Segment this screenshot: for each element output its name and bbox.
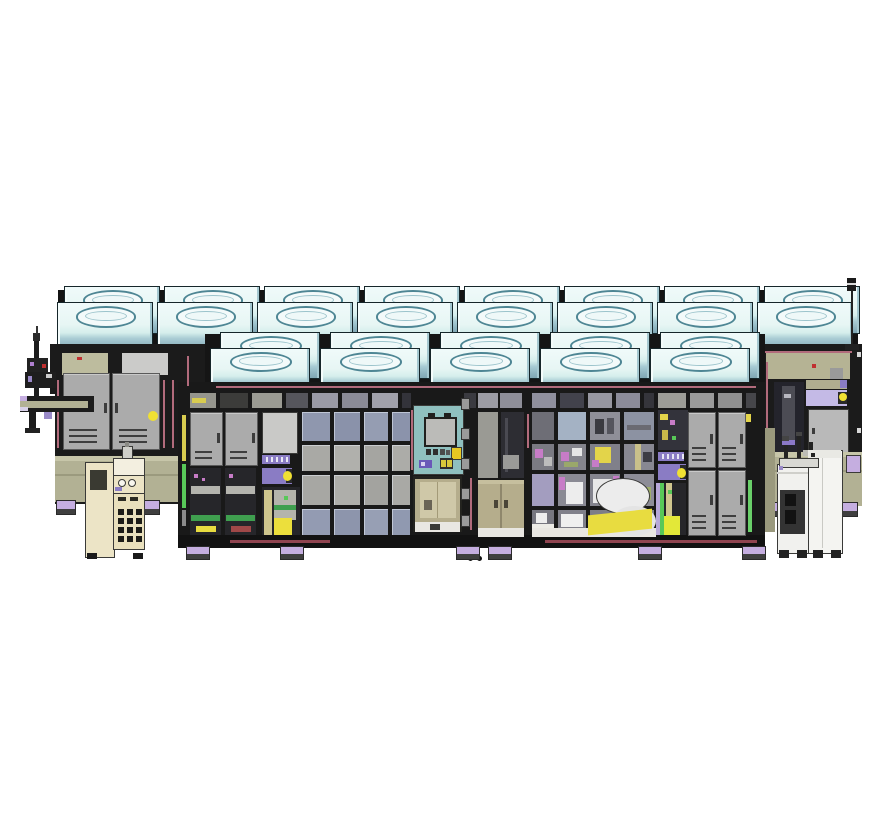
efem1-c-khaki: [264, 490, 272, 535]
accent-line-3: [230, 540, 330, 543]
efem1-tall-panel: [262, 412, 298, 454]
tower-foot: [25, 428, 40, 433]
pendant-btn-3: [440, 449, 445, 455]
tower-shelf-khaki: [20, 401, 88, 408]
bay-window-r1c4: [624, 412, 654, 440]
doors-yellow-chip: [746, 414, 751, 422]
service-door-top-left-vent: [692, 459, 706, 461]
tower-marks: [20, 407, 28, 411]
transom-window-18: [690, 393, 714, 408]
mid-cabinet-split: [500, 484, 502, 528]
tower-lamp-purple: [30, 362, 34, 366]
keypad-tick-2-3: [672, 454, 674, 459]
cart-key-r3c2: [127, 527, 133, 533]
service-door-bottom-right-vent: [722, 527, 736, 529]
service-door-bottom-right-vent: [722, 521, 736, 523]
efem1-a-yellow: [196, 526, 216, 532]
left-module-window-red-dot: [77, 357, 82, 360]
door-hinge-4: [461, 488, 470, 500]
transom-window-4: [286, 393, 308, 408]
cart-key-r4c3: [136, 536, 142, 542]
service-door-top-right-vent: [722, 447, 736, 449]
efem1-window-a: [190, 468, 221, 535]
right-module-mark-1: [857, 352, 861, 357]
keypad-tick-1-3: [276, 457, 278, 462]
bay-window-r1c2: [558, 412, 586, 440]
bay-equipment-chip: [561, 514, 583, 527]
left-module-door-b-vent: [119, 441, 148, 443]
front-edge-yellow-strip: [182, 415, 186, 461]
door-hinge-3: [461, 458, 470, 470]
tower-lamp-red: [42, 364, 46, 368]
transom-window-11: [500, 393, 522, 408]
left-module-door-a-vent: [69, 441, 97, 443]
glass-tile-r2c2: [334, 445, 360, 471]
left-cart-slot-1: [118, 497, 126, 501]
mid-window-box: [503, 455, 519, 469]
service-door-bottom-left-vent: [692, 515, 706, 517]
transom-yellow-chip: [192, 398, 206, 403]
efem2-yellow: [664, 516, 680, 535]
efem1-yellow-lamp: [283, 471, 292, 481]
antenna-rod: [851, 290, 853, 348]
cart-key-r4c2: [127, 536, 133, 542]
right-cart-manifold: [779, 458, 819, 468]
left-module-door-a-vent: [69, 429, 97, 431]
left-module-window-khaki: [62, 353, 108, 375]
door-hinge-1: [461, 398, 470, 410]
glass-tile-r1c2: [334, 412, 360, 441]
hinge-pink-line: [470, 478, 472, 530]
left-cart-btn-2: [128, 479, 136, 487]
mid-floor: [478, 528, 524, 537]
efem1-door-a: [190, 412, 223, 466]
service-door-bottom-left-vent: [692, 521, 706, 523]
efem1-door-a-vent: [195, 457, 212, 459]
keypad-tick-2-4: [677, 454, 679, 459]
efem2-chip-y2: [662, 430, 668, 440]
left-cart-screen: [90, 470, 107, 490]
pendant-btn-1: [426, 449, 431, 455]
glass-tile-r2c3: [364, 445, 388, 471]
bay-equipment-chip: [627, 425, 651, 431]
efem2-yellow-lamp: [677, 468, 686, 478]
efem1-a-dot1: [194, 474, 198, 478]
mid-cabinet-handle-1: [494, 500, 498, 508]
bay-equipment-chip: [535, 449, 543, 458]
efem1-a-bar: [191, 486, 220, 494]
glass-tile-r3c1: [302, 475, 330, 505]
pendant-btn-4: [446, 450, 450, 455]
bay-window-r2c4: [624, 444, 654, 470]
right-cart-seam: [822, 458, 823, 548]
center-window-floor-bit: [430, 524, 440, 530]
glass-tile-r3c4: [392, 475, 410, 505]
efem1-door-b-vent: [230, 451, 247, 453]
glass-tile-r1c1: [302, 412, 330, 441]
service-door-top-left-handle: [710, 434, 713, 444]
right-cart-caster-4: [831, 550, 841, 558]
right-cart-caster-3: [813, 550, 823, 558]
cart-key-r2c1: [118, 518, 124, 524]
leveling-caster-7: [56, 500, 76, 515]
right-cart-square-2: [785, 510, 796, 524]
efem2-greendot: [668, 490, 672, 494]
efem1-b-dot: [229, 474, 233, 478]
service-door-top-right-vent: [722, 453, 736, 455]
bay-equipment-chip: [595, 419, 604, 434]
transom-window-10: [478, 393, 498, 408]
left-cart-foot-2: [133, 553, 143, 559]
keypad-tick-2-1: [662, 454, 664, 459]
left-module-pink-line-2: [163, 380, 165, 448]
efem1-c-green: [274, 505, 296, 510]
transom-window-19: [718, 393, 742, 408]
pendant-badge-dot: [421, 462, 425, 466]
glass-tile-r3c3: [364, 475, 388, 505]
glass-tile-r2c4: [392, 445, 410, 471]
left-cart-bottle-cap: [125, 442, 129, 447]
efem2-chip-g: [672, 436, 676, 440]
equipment-line-render: [0, 0, 879, 834]
transom-window-16: [644, 393, 654, 408]
bay-equipment-chip: [559, 477, 565, 490]
tower-chip-purple: [28, 376, 32, 382]
efem1-a-dot2: [202, 478, 205, 481]
right-cart-unit-line: [777, 472, 808, 474]
glass-tile-r4c2: [334, 509, 360, 535]
ffu-fan-ring-inner: [349, 356, 392, 365]
bay-window-r1c1: [532, 412, 554, 440]
transom-window-13: [560, 393, 584, 408]
service-door-top-left-vent: [692, 453, 706, 455]
transom-window-3: [252, 393, 282, 408]
door-hinge-5: [461, 515, 470, 527]
left-cart-chip: [115, 487, 122, 491]
tower-chip-white: [46, 374, 52, 378]
cart-key-r4c1: [118, 536, 124, 542]
bay-window-r2c3: [590, 444, 620, 470]
bay-equipment-chip: [561, 452, 569, 461]
right-module-gray-box: [830, 368, 843, 379]
bay-window-r1c3: [590, 412, 620, 440]
service-door-bottom-right-handle: [740, 495, 743, 505]
bay-equipment-chip: [566, 482, 583, 504]
bay-equipment-chip: [643, 452, 652, 462]
keypad-tick-1-5: [286, 457, 288, 462]
transom-window-2: [220, 393, 248, 408]
left-cart-slot-2: [130, 497, 138, 501]
right-cart-knob-2: [796, 432, 802, 436]
efem1-door-a-handle: [217, 433, 220, 443]
glass-tile-r3c2: [334, 475, 360, 505]
center-window-seam: [437, 482, 438, 518]
bay-equipment-chip: [592, 460, 600, 468]
cart-key-r1c2: [127, 509, 133, 515]
keypad-tick-1-2: [271, 457, 273, 462]
transom-window-5: [312, 393, 338, 408]
pendant-btn-2: [433, 449, 438, 455]
cart-key-r3c3: [136, 527, 142, 533]
ffu-fan-ring-inner: [239, 356, 282, 365]
left-cart-btn-1: [118, 479, 126, 487]
efem1-a-green: [191, 515, 220, 521]
service-door-top-right: [718, 412, 746, 468]
left-module-pink-line-1: [57, 380, 59, 448]
right-cart-knob-1: [782, 436, 789, 441]
cart-key-r1c3: [136, 509, 142, 515]
pendant-ear-2: [444, 413, 451, 418]
glass-tile-r4c4: [392, 509, 410, 535]
service-door-top-left-vent: [692, 447, 706, 449]
transom-window-14: [588, 393, 612, 408]
bay-equipment-chip: [607, 418, 615, 435]
efem2-chip-y1: [660, 414, 668, 420]
service-door-top-right-handle: [740, 434, 743, 444]
efem1-door-b-handle: [252, 433, 255, 443]
front-edge-green-strip: [182, 464, 186, 508]
efem1-window-b: [225, 468, 256, 535]
right-cart-purple-dot: [779, 466, 783, 470]
door-hinge-2: [461, 428, 470, 440]
leveling-caster-2: [280, 546, 304, 560]
cart-key-r2c2: [127, 518, 133, 524]
transom-window-17: [658, 393, 686, 408]
efem1-b-green: [226, 515, 255, 521]
left-cart-foot-1: [87, 553, 97, 559]
mid-pink-line: [527, 414, 529, 448]
keypad-tick-1-1: [266, 457, 268, 462]
front-edge-gray-strip: [182, 510, 186, 526]
antenna-stripe: [847, 283, 856, 285]
ffu-fan-ring-inner: [569, 356, 612, 365]
left-module-door-a-vent: [69, 435, 97, 437]
accent-line-4: [545, 540, 757, 543]
cart-key-r1c1: [118, 509, 124, 515]
left-module-door-b-vent: [119, 435, 148, 437]
pendant-key-2: [447, 460, 452, 467]
left-module-window-light: [122, 353, 168, 375]
center-window-dark: [424, 500, 432, 510]
bay-equipment-chip: [572, 448, 582, 456]
right-module-mark-2: [857, 428, 861, 433]
glass-tile-r1c4: [392, 412, 410, 441]
tower-shelf-caster: [20, 396, 27, 401]
right-cart-caster-2: [797, 550, 807, 558]
leveling-caster-5: [638, 546, 662, 560]
efem1-door-b: [225, 412, 258, 466]
leveling-caster-3: [456, 546, 480, 560]
transom-window-6: [342, 393, 368, 408]
service-door-bottom-left: [688, 470, 716, 536]
service-door-bottom-right-vent: [722, 515, 736, 517]
ffu-fan-ring-inner: [679, 356, 722, 365]
pendant-key-1: [441, 460, 446, 467]
service-door-top-right-vent: [722, 459, 736, 461]
bay-equipment-chip: [564, 462, 578, 467]
service-door-bottom-left-vent: [692, 527, 706, 529]
leveling-caster-6: [742, 546, 766, 560]
keypad-tick-2-2: [667, 454, 669, 459]
efem1-c-yellow: [274, 518, 292, 535]
bay-equipment-chip: [536, 513, 547, 523]
right-cart-pipe-2: [797, 436, 801, 460]
left-module-door-a-handle: [104, 403, 107, 413]
glass-tile-r1c3: [364, 412, 388, 441]
service-door-bottom-right: [718, 470, 746, 536]
service-door-top-left: [688, 412, 716, 468]
mid-window-mullion: [498, 412, 501, 478]
right-module-rack-chip: [784, 394, 791, 398]
left-module-door-b-vent: [119, 429, 148, 431]
cart-key-r3c1: [118, 527, 124, 533]
right-module-purple-chip: [840, 380, 847, 388]
doors-green-strip: [748, 480, 752, 532]
bay-equipment-chip: [635, 444, 641, 470]
bay-window-r2c1: [532, 444, 554, 470]
pendant-ear-1: [428, 413, 435, 418]
right-module-red-dot: [812, 364, 816, 368]
efem1-b-bar: [226, 486, 255, 494]
efem1-b-red: [231, 526, 251, 532]
transom-window-7: [372, 393, 398, 408]
transom-window-20: [746, 393, 756, 408]
left-module-pink-line-3: [172, 380, 174, 448]
keypad-tick-2-5: [682, 454, 684, 459]
efem1-door-a-vent: [195, 451, 212, 453]
transom-window-12: [532, 393, 556, 408]
cart-key-r2c3: [136, 518, 142, 524]
tower-purple-box: [44, 412, 52, 419]
glass-tile-r4c3: [364, 509, 388, 535]
accent-line-2: [216, 386, 756, 388]
bay-window-r3c2: [558, 474, 586, 506]
service-door-bottom-left-handle: [710, 495, 713, 505]
right-cart-dot: [811, 453, 815, 457]
mid-cabinet-handle-2: [504, 500, 508, 508]
leveling-caster-4: [488, 546, 512, 560]
glass-tile-r4c1: [302, 509, 330, 535]
right-cart-square-1: [785, 494, 796, 506]
right-module-yellow-lamp: [839, 393, 847, 401]
leveling-caster-1: [186, 546, 210, 560]
right-cart-caster-1: [779, 550, 789, 558]
pendant-screen: [424, 417, 457, 447]
bay-window-r2c2: [558, 444, 586, 470]
tower-antenna: [36, 326, 38, 334]
bay-equipment-chip: [544, 457, 552, 466]
left-module-door-b-handle: [115, 403, 118, 413]
efem2-chip-p: [670, 420, 675, 425]
glass-tile-r2c1: [302, 445, 330, 471]
efem1-c-greendot: [284, 496, 288, 500]
keypad-tick-1-4: [281, 457, 283, 462]
front-corner-pink-line: [187, 356, 189, 386]
left-module-yellow-lamp: [148, 411, 158, 421]
right-module-door-handle: [812, 428, 815, 434]
antenna-base: [845, 344, 859, 350]
ffu-fan-ring-inner: [459, 356, 502, 365]
tower-tip: [33, 333, 40, 341]
right-module-fitting: [846, 455, 861, 473]
efem1-door-b-vent: [230, 457, 247, 459]
transom-window-15: [616, 393, 640, 408]
transom-window-8: [402, 393, 411, 408]
bay-window-r3c1: [532, 474, 554, 506]
